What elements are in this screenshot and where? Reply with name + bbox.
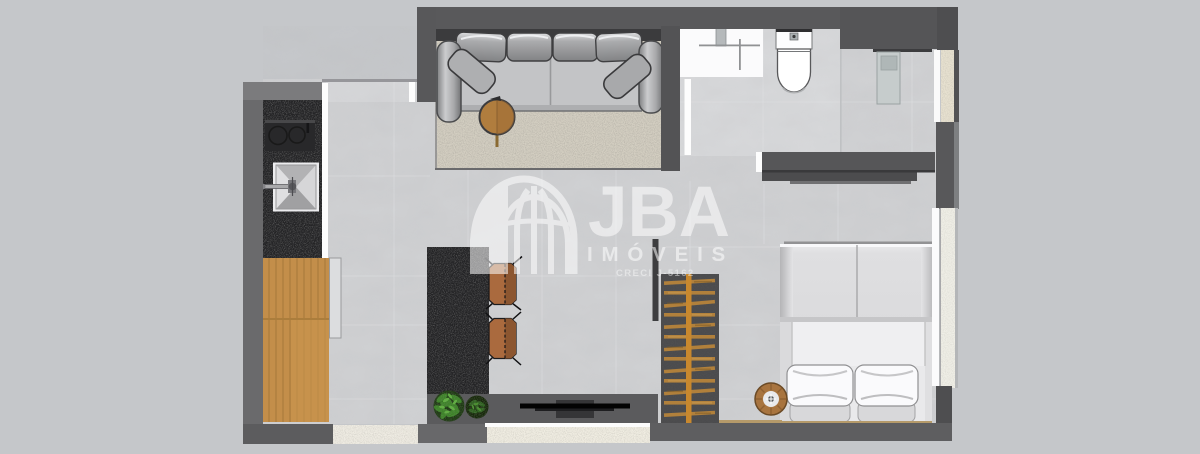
svg-text:CRECI J-5162: CRECI J-5162 — [616, 268, 695, 279]
svg-text:IMÓVEIS: IMÓVEIS — [587, 242, 734, 266]
svg-text:JBA: JBA — [588, 173, 730, 252]
